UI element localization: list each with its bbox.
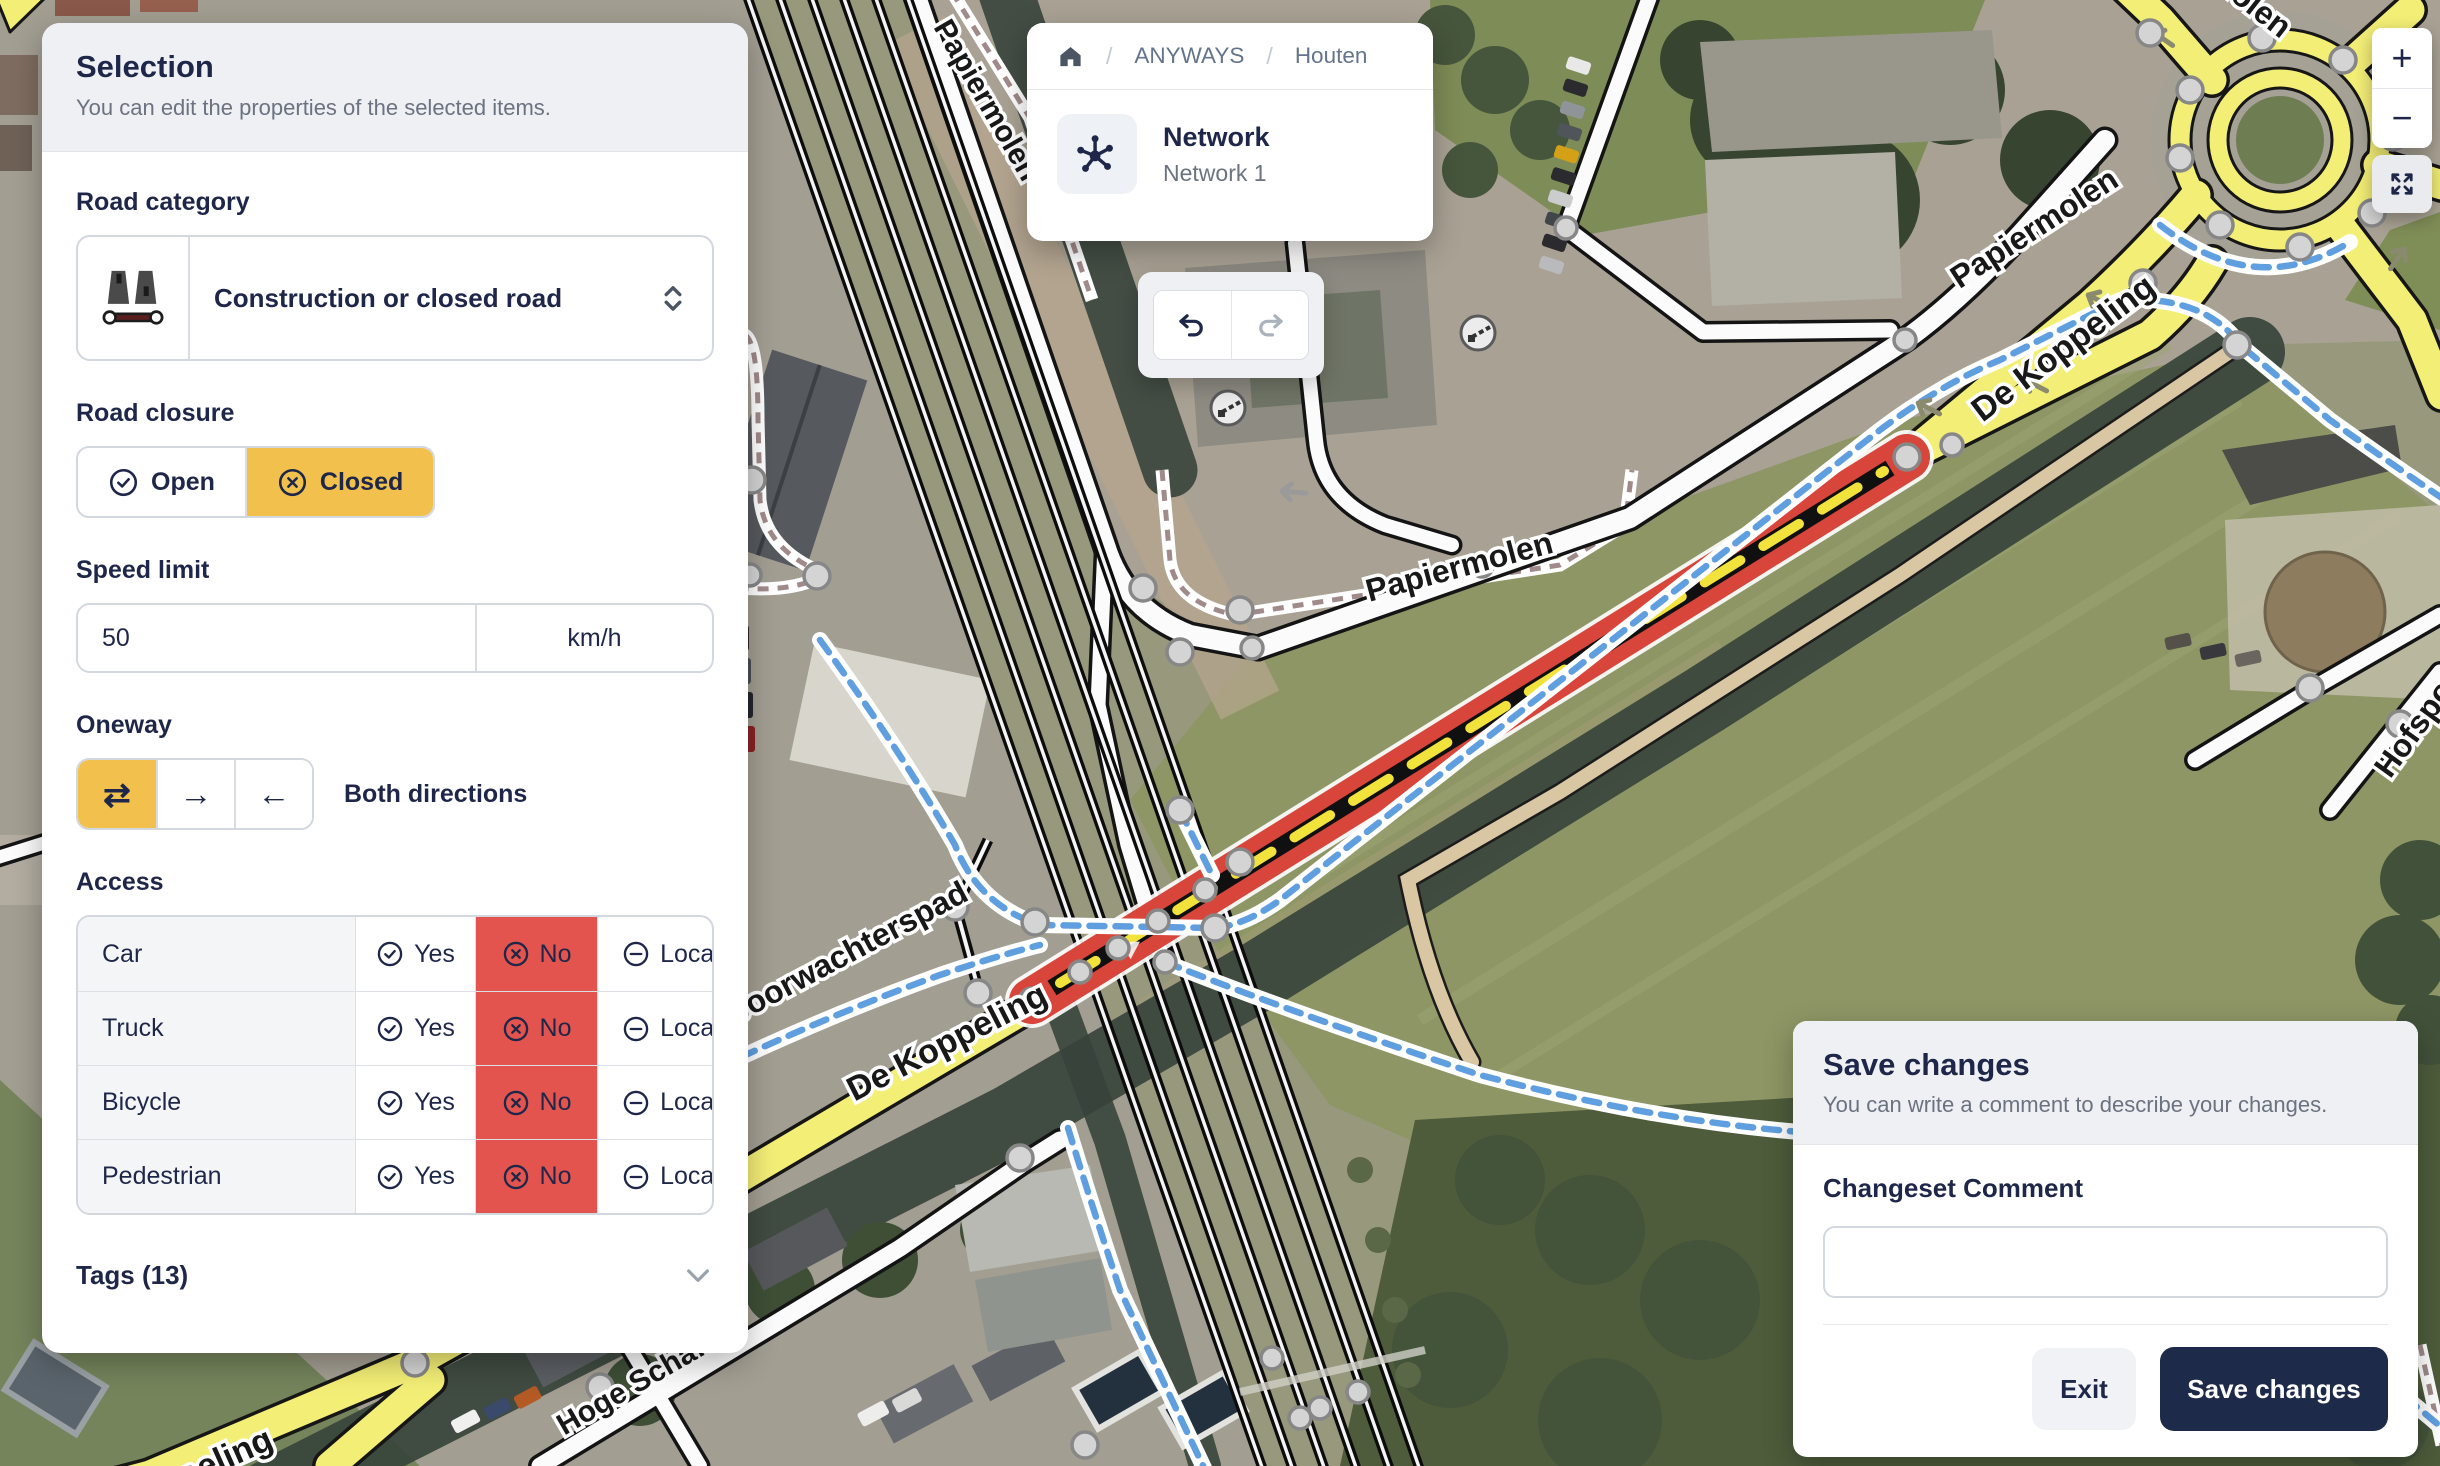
- oneway-backward-button[interactable]: ←: [234, 760, 312, 828]
- access-no-label: No: [540, 1014, 572, 1043]
- tags-expander[interactable]: Tags (13): [76, 1259, 714, 1291]
- access-local-cell[interactable]: Local: [597, 917, 714, 991]
- access-local-cell[interactable]: Local: [597, 1066, 714, 1139]
- exit-button[interactable]: Exit: [2032, 1348, 2136, 1430]
- road-closure-label: Road closure: [76, 399, 714, 428]
- access-row-name: Pedestrian: [78, 1140, 355, 1213]
- zoom-in-button[interactable]: +: [2372, 28, 2432, 89]
- table-row: Bicycle Yes No Local: [78, 1065, 712, 1139]
- redo-button[interactable]: [1231, 291, 1309, 359]
- access-table: Car Yes No Local Truck Yes No Local Bicy…: [76, 915, 714, 1215]
- access-row-name: Truck: [78, 992, 355, 1065]
- network-summary: Network Network 1: [1027, 90, 1433, 218]
- app-root: Papiermolen Papiermolen Papiermolen Papi…: [0, 0, 2440, 1466]
- closure-open-button[interactable]: Open: [78, 448, 245, 516]
- oneway-both-button[interactable]: ⇄: [78, 760, 156, 828]
- save-changes-panel: Save changes You can write a comment to …: [1793, 1021, 2418, 1457]
- road-category-label: Road category: [76, 188, 714, 217]
- fullscreen-button[interactable]: [2372, 155, 2432, 213]
- map-zoom-control: + −: [2372, 28, 2432, 148]
- access-label: Access: [76, 868, 714, 897]
- breadcrumb: / ANYWAYS / Houten: [1027, 23, 1433, 90]
- access-no-label: No: [540, 940, 572, 969]
- access-local-label: Local: [660, 1014, 714, 1043]
- undo-icon: [1176, 309, 1208, 341]
- history-toolbar: [1138, 272, 1324, 378]
- select-carets-icon: [656, 237, 712, 359]
- arrow-right-icon: →: [180, 775, 213, 813]
- save-panel-subtitle: You can write a comment to describe your…: [1823, 1092, 2388, 1118]
- access-no-label: No: [540, 1162, 572, 1191]
- selection-panel-header: Selection You can edit the properties of…: [42, 23, 748, 152]
- speed-limit-label: Speed limit: [76, 556, 714, 585]
- access-yes-label: Yes: [414, 1162, 455, 1191]
- breadcrumb-separator: /: [1266, 43, 1272, 70]
- access-no-cell[interactable]: No: [475, 917, 597, 991]
- access-yes-cell[interactable]: Yes: [355, 917, 475, 991]
- chevron-down-icon: [682, 1259, 714, 1291]
- oneway-selected-text: Both directions: [344, 780, 527, 809]
- closure-closed-label: Closed: [320, 468, 403, 497]
- network-title: Network: [1163, 122, 1270, 153]
- panel-subtitle: You can edit the properties of the selec…: [76, 95, 714, 121]
- access-no-cell[interactable]: No: [475, 992, 597, 1065]
- changeset-comment-label: Changeset Comment: [1823, 1173, 2388, 1204]
- panel-title: Selection: [76, 49, 714, 85]
- redo-icon: [1254, 309, 1286, 341]
- breadcrumb-item-houten[interactable]: Houten: [1295, 43, 1368, 69]
- save-panel-title: Save changes: [1823, 1047, 2388, 1083]
- speed-unit-label: km/h: [475, 605, 712, 671]
- save-panel-header: Save changes You can write a comment to …: [1793, 1021, 2418, 1145]
- undo-button[interactable]: [1154, 291, 1231, 359]
- access-no-cell[interactable]: No: [475, 1066, 597, 1139]
- table-row: Pedestrian Yes No Local: [78, 1139, 712, 1213]
- breadcrumb-card: / ANYWAYS / Houten Network Network 1: [1027, 23, 1433, 241]
- speed-limit-input[interactable]: [78, 605, 475, 671]
- access-local-label: Local: [660, 1162, 714, 1191]
- changeset-comment-input[interactable]: [1823, 1226, 2388, 1298]
- access-yes-cell[interactable]: Yes: [355, 1066, 475, 1139]
- save-changes-button[interactable]: Save changes: [2160, 1347, 2388, 1431]
- access-yes-cell[interactable]: Yes: [355, 992, 475, 1065]
- breadcrumb-separator: /: [1106, 43, 1112, 70]
- fullscreen-icon: [2387, 169, 2417, 199]
- tags-label: Tags (13): [76, 1260, 188, 1291]
- access-yes-cell[interactable]: Yes: [355, 1140, 475, 1213]
- access-yes-label: Yes: [414, 1088, 455, 1117]
- home-icon[interactable]: [1057, 43, 1084, 70]
- breadcrumb-item-anyways[interactable]: ANYWAYS: [1134, 43, 1244, 69]
- access-no-label: No: [540, 1088, 572, 1117]
- access-local-cell[interactable]: Local: [597, 992, 714, 1065]
- oneway-label: Oneway: [76, 711, 714, 740]
- access-row-name: Bicycle: [78, 1066, 355, 1139]
- network-name: Network 1: [1163, 160, 1270, 187]
- table-row: Car Yes No Local: [78, 917, 712, 991]
- access-row-name: Car: [78, 917, 355, 991]
- access-local-label: Local: [660, 940, 714, 969]
- access-yes-label: Yes: [414, 940, 455, 969]
- arrow-left-icon: ←: [258, 775, 291, 813]
- table-row: Truck Yes No Local: [78, 991, 712, 1065]
- oneway-forward-button[interactable]: →: [156, 760, 234, 828]
- access-local-label: Local: [660, 1088, 714, 1117]
- access-yes-label: Yes: [414, 1014, 455, 1043]
- road-category-value: Construction or closed road: [190, 237, 656, 359]
- access-local-cell[interactable]: Local: [597, 1140, 714, 1213]
- selection-panel: Selection You can edit the properties of…: [42, 23, 748, 1353]
- closure-open-label: Open: [151, 468, 215, 497]
- access-no-cell[interactable]: No: [475, 1140, 597, 1213]
- road-category-select[interactable]: Construction or closed road: [76, 235, 714, 361]
- network-icon: [1057, 114, 1137, 194]
- both-directions-icon: ⇄: [103, 775, 131, 814]
- zoom-out-button[interactable]: −: [2372, 89, 2432, 149]
- closed-road-icon: [78, 237, 190, 359]
- closure-closed-button[interactable]: Closed: [245, 448, 433, 516]
